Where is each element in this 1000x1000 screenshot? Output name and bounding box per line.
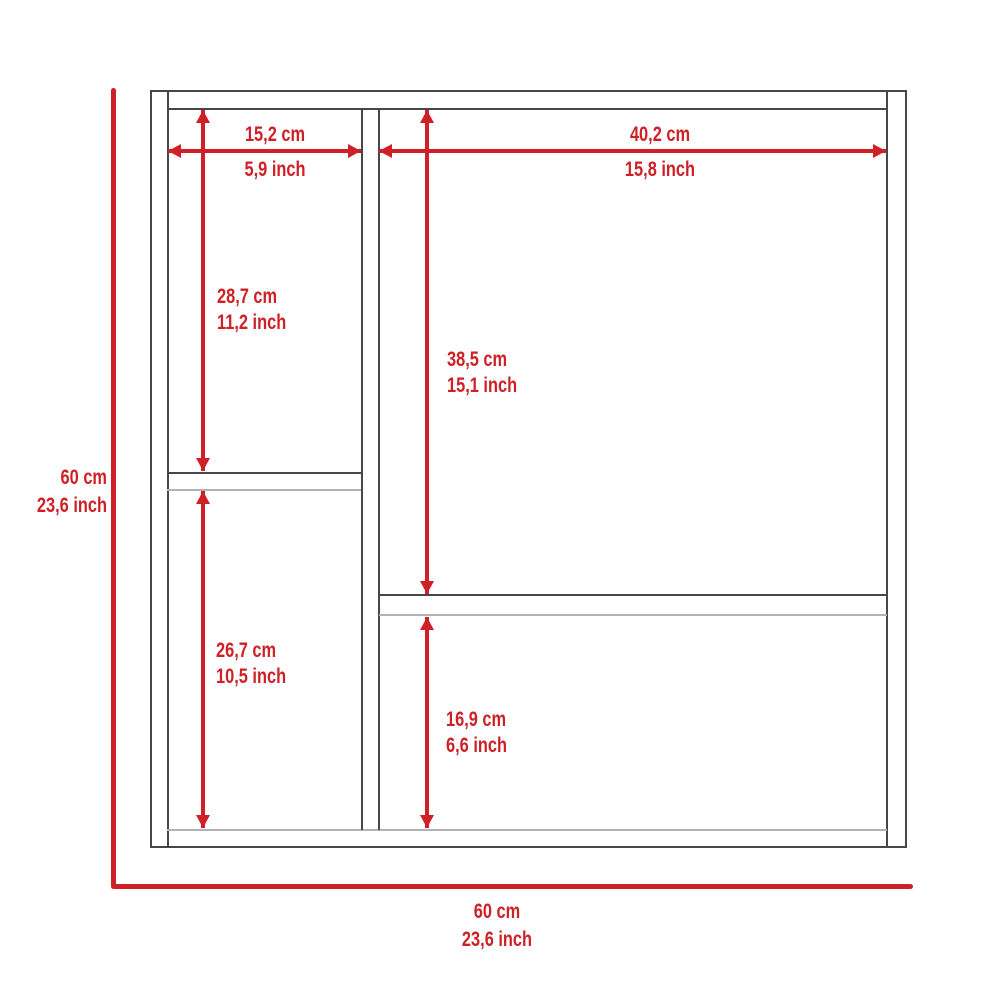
arrow-tip-up <box>420 110 434 123</box>
dim-label-overall-width: 60 cm 23,6 inch <box>302 898 692 954</box>
inner-left-edge <box>167 91 169 847</box>
dim-label-right-lower-compartment: 16,9 cm 6,6 inch <box>446 707 507 759</box>
overall-height-line <box>111 88 116 888</box>
overall-width-line <box>111 884 913 889</box>
dim-label-left-lower-compartment: 26,7 cm 10,5 inch <box>216 638 286 690</box>
dim-label-left-column-width-inch: 5,9 inch <box>192 157 359 183</box>
left-shelf-top-edge <box>167 472 361 474</box>
dimension-diagram: 15,2 cm 5,9 inch 40,2 cm 15,8 inch 28,7 … <box>0 0 1000 1000</box>
arrow-line <box>425 110 429 594</box>
dim-label-right-column-width-cm: 40,2 cm <box>441 122 879 148</box>
value-cm: 38,5 cm <box>447 347 517 373</box>
arrow-line <box>201 491 205 828</box>
inner-bottom-edge <box>167 829 887 831</box>
arrow-line <box>168 149 361 153</box>
arrow-tip-down <box>420 815 434 828</box>
value-inch: 23,6 inch <box>302 926 692 954</box>
arrow-tip-down <box>196 815 210 828</box>
arrow-tip-down <box>196 458 210 471</box>
dim-label-overall-height: 60 cm 23,6 inch <box>24 464 107 520</box>
value-inch: 11,2 inch <box>217 310 286 336</box>
outer-top-edge <box>150 90 907 92</box>
right-shelf-bottom-edge <box>379 614 887 616</box>
divider-left-edge <box>361 109 363 830</box>
divider-right-edge <box>378 109 380 830</box>
inner-right-edge <box>886 91 888 847</box>
dim-label-left-column-width-cm: 15,2 cm <box>192 122 359 148</box>
value-inch: 6,6 inch <box>446 733 507 759</box>
arrow-tip-up <box>196 491 210 504</box>
dim-label-left-upper-compartment: 28,7 cm 11,2 inch <box>217 284 286 336</box>
value-cm: 26,7 cm <box>216 638 286 664</box>
outer-bottom-edge <box>150 846 907 848</box>
right-shelf-top-edge <box>379 594 887 596</box>
value-inch: 23,6 inch <box>24 492 107 520</box>
inner-top-edge <box>167 108 887 110</box>
outer-left-edge <box>150 90 152 848</box>
value-cm: 60 cm <box>24 464 107 492</box>
outer-right-edge <box>905 90 907 848</box>
value-cm: 60 cm <box>302 898 692 926</box>
arrow-tip-down <box>420 581 434 594</box>
arrow-tip-up <box>420 617 434 630</box>
value-cm: 16,9 cm <box>446 707 507 733</box>
value-cm: 28,7 cm <box>217 284 286 310</box>
dim-label-right-column-width-inch: 15,8 inch <box>441 157 879 183</box>
arrow-tip-left <box>168 144 181 158</box>
arrow-line <box>379 149 886 153</box>
dim-label-right-upper-compartment: 38,5 cm 15,1 inch <box>447 347 517 399</box>
value-inch: 15,1 inch <box>447 373 517 399</box>
value-inch: 10,5 inch <box>216 664 286 690</box>
arrow-line <box>425 617 429 828</box>
arrow-tip-left <box>379 144 392 158</box>
